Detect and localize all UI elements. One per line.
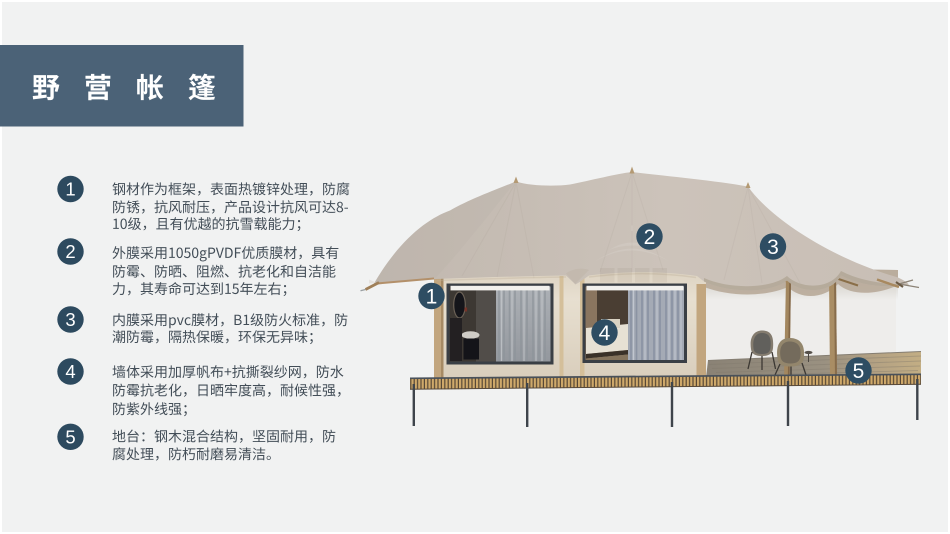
svg-text:1: 1 — [426, 285, 438, 308]
svg-text:3: 3 — [65, 309, 75, 330]
svg-text:5: 5 — [853, 360, 865, 383]
svg-text:2: 2 — [644, 226, 656, 249]
svg-text:4: 4 — [599, 322, 611, 345]
svg-text:4: 4 — [65, 361, 75, 382]
svg-text:2: 2 — [65, 241, 75, 262]
svg-text:5: 5 — [65, 426, 75, 447]
svg-text:3: 3 — [767, 236, 779, 259]
svg-text:1: 1 — [65, 179, 75, 200]
